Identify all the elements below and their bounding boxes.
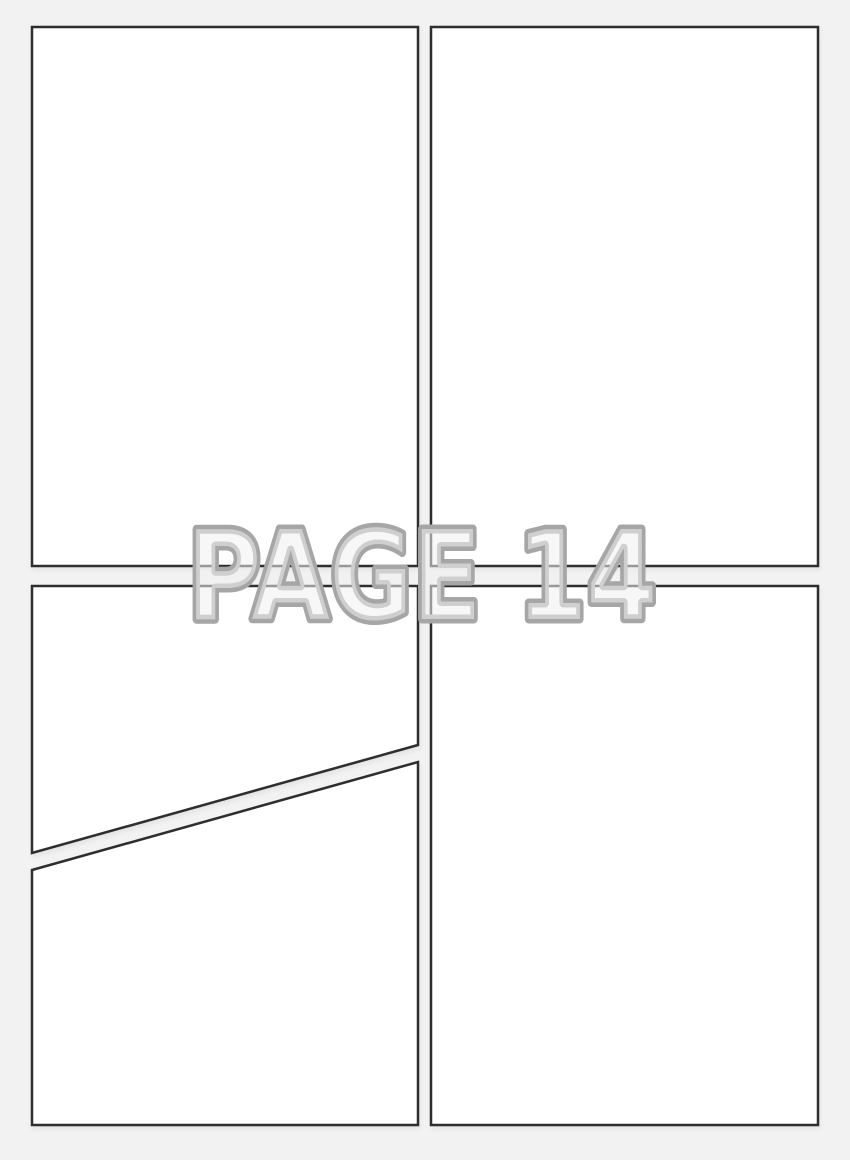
- page-number-watermark: PAGE 14: [187, 506, 657, 649]
- comic-page-template: PAGE 14: [0, 0, 850, 1160]
- panel-bottom-right: [431, 586, 818, 1125]
- panel-top-right: [431, 27, 818, 566]
- panel-top-left: [32, 27, 418, 566]
